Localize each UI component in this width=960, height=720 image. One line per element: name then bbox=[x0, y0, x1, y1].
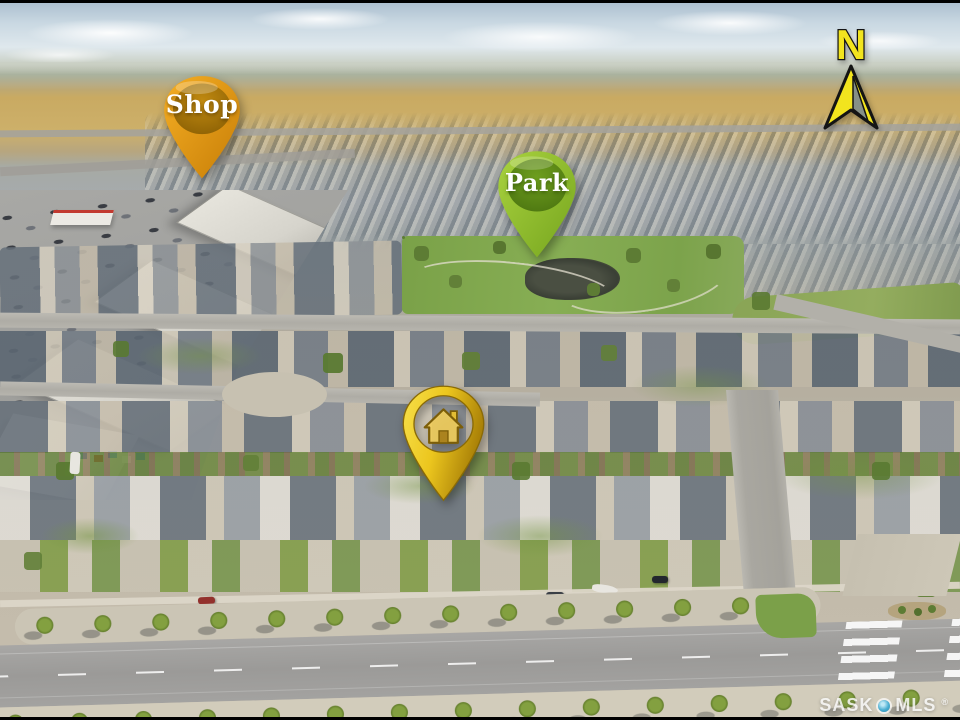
bushes bbox=[898, 606, 906, 614]
grass-corner bbox=[755, 593, 816, 639]
house-row bbox=[0, 240, 403, 321]
crosswalk bbox=[837, 620, 902, 684]
shop-pin-icon bbox=[158, 72, 246, 180]
intersecting-street bbox=[842, 534, 960, 596]
gas-station-canopy bbox=[50, 210, 114, 225]
park-pin: Park bbox=[492, 147, 582, 259]
park-pin-label: Park bbox=[492, 168, 582, 197]
watermark-sask-text: SASK bbox=[819, 695, 873, 716]
aerial-listing-photo: Shop Park bbox=[0, 0, 960, 720]
rv-trailer bbox=[69, 452, 80, 474]
mls-globe-icon bbox=[878, 700, 890, 712]
park-pin-icon bbox=[492, 147, 582, 259]
horizon-haze bbox=[0, 62, 960, 90]
house-icon bbox=[425, 409, 463, 442]
shop-pin: Shop bbox=[158, 72, 246, 180]
letterbox-bar-top bbox=[0, 0, 960, 3]
compass-n-label: N bbox=[836, 22, 866, 68]
home-pin bbox=[397, 382, 490, 502]
watermark-mls-text: MLS bbox=[895, 695, 936, 716]
north-compass: N bbox=[818, 22, 884, 134]
shop-pin-label: Shop bbox=[158, 90, 246, 119]
home-pin-icon bbox=[397, 382, 490, 502]
registered-trademark-symbol: ® bbox=[941, 697, 948, 707]
lane-line-dashed bbox=[0, 648, 960, 678]
north-arrow-icon: N bbox=[818, 22, 884, 134]
cul-de-sac bbox=[222, 372, 327, 417]
mulch-bed bbox=[888, 602, 946, 620]
mls-watermark: SASK MLS ® bbox=[819, 695, 948, 716]
sky-clouds bbox=[0, 3, 960, 69]
house-row bbox=[0, 331, 960, 387]
park-trees bbox=[402, 236, 405, 239]
parked-car bbox=[652, 576, 668, 583]
